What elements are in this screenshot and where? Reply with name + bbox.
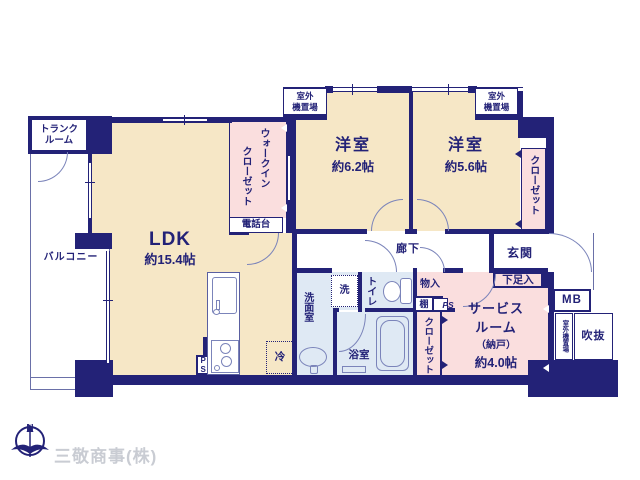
closet-right-label: クローゼット [527,155,539,215]
wall [546,138,554,233]
outdoor-unit-label: 室外機置場 [292,91,318,111]
outdoor-unit-vertical-label: 室外機置場 [560,320,568,353]
balcony-label: バルコニー [34,252,108,264]
service-room-label-line1: サービス [452,298,540,317]
window-tick [184,115,185,125]
phone-stand-label: 電話台 [242,219,271,230]
washer-space: 洗 [331,275,358,307]
wall [110,375,532,385]
sliding-door [287,156,291,200]
wall [295,268,332,273]
window [88,163,92,218]
bedroom-b-size-label: 約5.6帖 [414,160,518,175]
meter-box-label: MB [562,294,582,308]
balcony-floor-line [30,377,76,378]
wall [377,86,412,93]
window-tick [103,300,113,301]
service-room-label-line3: （納戸） [452,336,540,351]
wall [409,92,413,231]
ldk-size-label: 約15.4帖 [110,252,230,267]
service-room-size-label: 約4.0帖 [452,352,540,371]
bathroom-label: 浴室 [338,349,380,361]
walk-in-closet-label: ウォークイン クローゼット [238,128,271,220]
trunk-room-label: トランクルーム [40,124,78,146]
walk-in-closet-label-line2: クローゼット [238,146,253,220]
toilet-label: トイレ [364,276,376,306]
wall [413,312,417,375]
wall [543,272,548,288]
void-box: 吹抜 [574,313,613,360]
hallway-label: 廊下 [380,243,436,256]
bath-counter [342,366,366,373]
closet-door-mark [515,220,521,228]
wall [75,233,112,249]
closet-bottom-label: クローゼット [422,317,433,374]
toilet-tank [400,278,412,304]
wall [528,360,618,397]
compass-icon: N [8,415,54,469]
service-room-label-line2: ルーム [452,317,540,336]
closet-door-mark [281,204,287,212]
washbasin-drain [310,365,318,374]
wall [445,229,554,234]
company-name: 三敬商事(株) [54,442,157,467]
bedroom-a-size-label: 約6.2帖 [300,160,406,175]
washbasin [299,347,327,367]
closet-door-mark [543,364,549,372]
closet-door-mark [281,124,287,132]
wall [333,312,337,375]
wall [88,116,112,154]
closet-door-mark [543,305,549,313]
stove-burner [221,356,232,367]
stove-burner [220,343,231,354]
room-ldk [92,152,232,233]
kitchen-faucet [213,309,220,315]
wall [75,360,113,397]
wall [518,117,554,138]
entrance-label: 玄関 [496,246,544,260]
closet-door-mark [442,316,448,324]
meter-box: MB [553,289,591,312]
window [106,251,110,363]
window-tick [352,84,353,95]
bedroom-b-name-label: 洋室 [414,137,518,156]
shelf-box: 棚 [415,297,433,311]
wall [548,272,554,375]
window-tick [85,182,95,183]
entrance-outer-line [593,233,594,290]
refrigerator-label: 冷 [275,351,286,363]
washer-label: 洗 [340,285,350,297]
wall [518,88,523,118]
wall [405,229,417,234]
refrigerator-space: 冷 [266,341,294,374]
void-label: 吹抜 [582,330,606,343]
shelf-label: 棚 [419,299,428,310]
ldk-name-label: LDK [110,229,230,251]
outdoor-unit-box-vertical: 室外機置場 [555,313,573,360]
window-tick [448,84,449,95]
bathtub-inner [380,320,405,367]
wall [443,268,463,273]
outdoor-unit-box-right: 室外機置場 [475,88,518,115]
floor-plan: トランクルーム 室外機置場 室外機置場 電話台 下足入 MB 室外機置場 吹抜 … [0,0,640,480]
closet-door-mark [442,361,448,369]
trunk-room-box: トランクルーム [28,116,90,154]
door-arc-entrance [549,233,592,272]
washroom-label: 洗面室 [301,292,313,322]
stove-burner [214,365,220,371]
wall [358,272,362,312]
toilet-bowl [383,281,401,302]
window [163,118,207,122]
wall [292,229,367,234]
bedroom-a-name-label: 洋室 [300,137,406,156]
compass-north-label: N [26,423,33,434]
outdoor-unit-box-left: 室外機置場 [283,88,327,115]
storage-label: 物入 [417,279,443,291]
wall [489,233,494,272]
shoe-cabinet-label: 下足入 [502,274,534,286]
walk-in-closet-label-line1: ウォークイン [256,128,271,220]
outdoor-unit-label: 室外機置場 [484,91,510,111]
service-room-label: サービス ルーム （納戸） 約4.0帖 [452,298,540,371]
shoe-cabinet-box: 下足入 [493,272,543,288]
